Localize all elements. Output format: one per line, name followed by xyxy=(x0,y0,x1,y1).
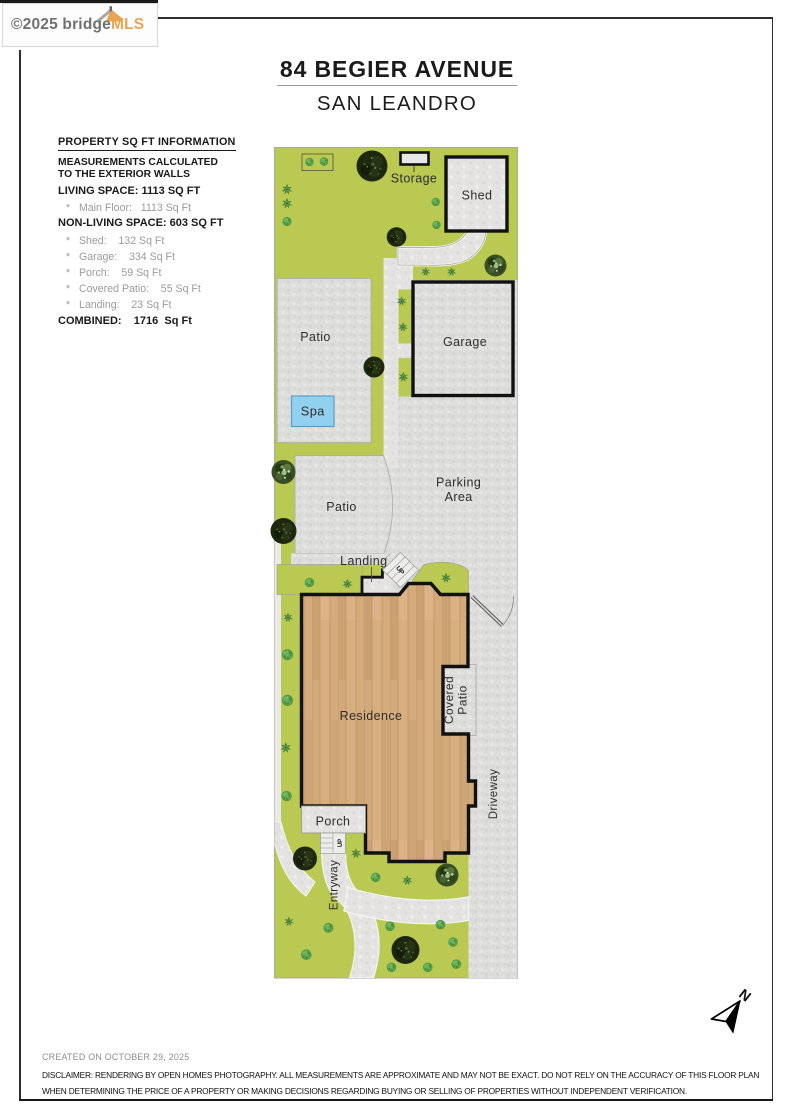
svg-text:Patio: Patio xyxy=(456,685,470,714)
svg-text:Driveway: Driveway xyxy=(488,769,500,820)
svg-text:Residence: Residence xyxy=(340,709,403,723)
svg-text:Landing: Landing xyxy=(340,554,387,568)
svg-text:UP: UP xyxy=(338,839,344,847)
svg-text:Shed: Shed xyxy=(462,189,493,203)
svg-text:Porch: Porch xyxy=(316,815,351,829)
svg-text:Area: Area xyxy=(445,490,473,504)
svg-text:Patio: Patio xyxy=(300,330,331,344)
svg-text:Covered: Covered xyxy=(442,676,456,724)
svg-text:Parking: Parking xyxy=(436,476,481,490)
svg-text:Garage: Garage xyxy=(443,335,487,349)
svg-text:Patio: Patio xyxy=(326,500,357,514)
svg-text:Spa: Spa xyxy=(301,404,325,419)
svg-text:Storage: Storage xyxy=(391,172,438,186)
svg-text:Entryway: Entryway xyxy=(329,860,341,911)
